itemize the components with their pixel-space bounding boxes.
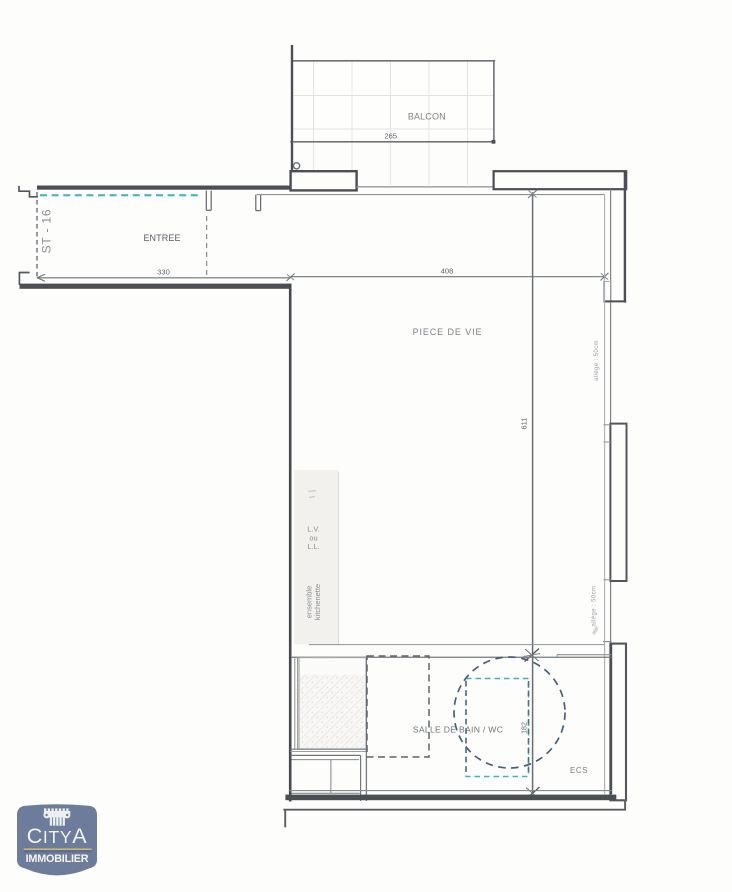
svg-text:611: 611 [520, 418, 529, 430]
svg-text:ENTREE: ENTREE [143, 233, 180, 243]
svg-text:BALCON: BALCON [408, 112, 446, 122]
svg-text:allège : 50cm: allège : 50cm [594, 340, 600, 381]
svg-text:182: 182 [521, 722, 528, 734]
svg-text:ST - 16: ST - 16 [40, 209, 54, 254]
svg-text:ensemblekitchenette: ensemblekitchenette [305, 584, 323, 620]
svg-text:330: 330 [157, 267, 170, 276]
svg-text:408: 408 [441, 266, 454, 275]
svg-text:PIECE DE VIE: PIECE DE VIE [413, 327, 483, 337]
svg-text:265: 265 [384, 132, 397, 141]
svg-text:ECS: ECS [570, 766, 588, 775]
svg-text:IMMOBILIER: IMMOBILIER [26, 853, 89, 865]
svg-text:allège : 50cm: allège : 50cm [592, 586, 598, 627]
svg-text:SALLE DE BAIN / WC: SALLE DE BAIN / WC [413, 724, 503, 734]
svg-text:CITYA: CITYA [27, 824, 88, 848]
